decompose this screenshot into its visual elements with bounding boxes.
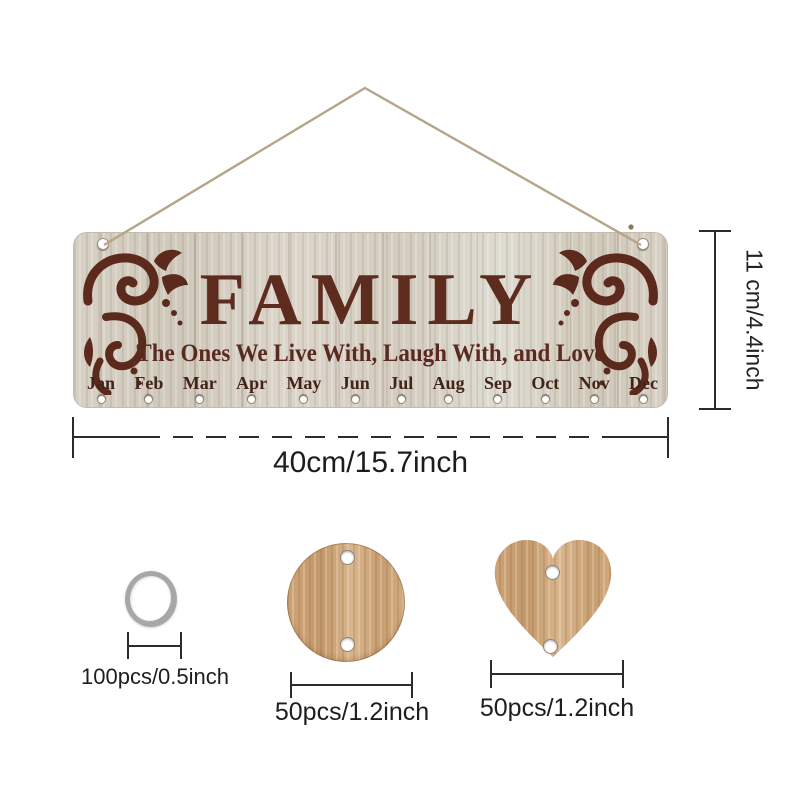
board-width-label: 40cm/15.7inch xyxy=(72,446,669,480)
month-hole xyxy=(397,395,406,404)
family-calendar-board: FAMILY The Ones We Live With, Laugh With… xyxy=(73,232,668,408)
month-label: Jun xyxy=(341,374,370,392)
dimension-line xyxy=(74,436,667,438)
month-label: Nov xyxy=(579,374,610,392)
month-label: Oct xyxy=(531,374,559,392)
month-hole xyxy=(97,395,106,404)
month-item: Dec xyxy=(629,374,658,404)
board-title: FAMILY xyxy=(74,263,667,337)
disc-hole-top xyxy=(340,550,355,565)
month-hole xyxy=(351,395,360,404)
month-label: Jan xyxy=(87,374,115,392)
month-item: Apr xyxy=(236,374,267,404)
month-item: Jun xyxy=(341,374,370,404)
month-item: Sep xyxy=(484,374,512,404)
heart-hole-top xyxy=(545,565,560,580)
month-item: Mar xyxy=(183,374,217,404)
disc-size-bracket xyxy=(290,672,413,698)
product-dimension-infographic: FAMILY The Ones We Live With, Laugh With… xyxy=(0,0,800,800)
month-label: May xyxy=(286,374,321,392)
month-hole xyxy=(195,395,204,404)
board-subtitle: The Ones We Live With, Laugh With, and L… xyxy=(98,340,644,368)
month-label: Feb xyxy=(134,374,163,392)
month-hole xyxy=(144,395,153,404)
month-item: Oct xyxy=(531,374,559,404)
heart-hole-bottom xyxy=(543,639,558,654)
month-label: Apr xyxy=(236,374,267,392)
wooden-heart xyxy=(488,535,618,659)
board-height-dimension-line xyxy=(699,230,731,410)
month-hole xyxy=(590,395,599,404)
month-label: Jul xyxy=(389,374,413,392)
month-label: Sep xyxy=(484,374,512,392)
month-item: Nov xyxy=(579,374,610,404)
month-hole xyxy=(639,395,648,404)
month-item: May xyxy=(286,374,321,404)
month-item: Aug xyxy=(433,374,465,404)
string-knot xyxy=(628,224,633,229)
month-hole xyxy=(444,395,453,404)
month-hole xyxy=(493,395,502,404)
metal-split-ring xyxy=(125,571,177,627)
disc-size-label: 50pcs/1.2inch xyxy=(272,698,432,727)
month-hole xyxy=(247,395,256,404)
month-hole xyxy=(541,395,550,404)
ring-size-bracket xyxy=(127,632,182,659)
month-label: Aug xyxy=(433,374,465,392)
heart-size-bracket xyxy=(490,660,624,688)
wooden-disc xyxy=(287,543,405,662)
months-row: Jan Feb Mar Apr May Jun Jul Aug Sep Oct … xyxy=(87,374,658,404)
month-item: Feb xyxy=(134,374,163,404)
month-label: Dec xyxy=(629,374,658,392)
month-item: Jul xyxy=(389,374,413,404)
ring-size-label: 100pcs/0.5inch xyxy=(75,664,235,690)
disc-hole-bottom xyxy=(340,637,355,652)
dimension-cap xyxy=(699,408,731,410)
heart-size-label: 50pcs/1.2inch xyxy=(477,694,637,723)
month-label: Mar xyxy=(183,374,217,392)
month-hole xyxy=(299,395,308,404)
dimension-line xyxy=(714,231,716,409)
board-height-label: 11 cm/4.4inch xyxy=(737,234,771,406)
month-item: Jan xyxy=(87,374,115,404)
